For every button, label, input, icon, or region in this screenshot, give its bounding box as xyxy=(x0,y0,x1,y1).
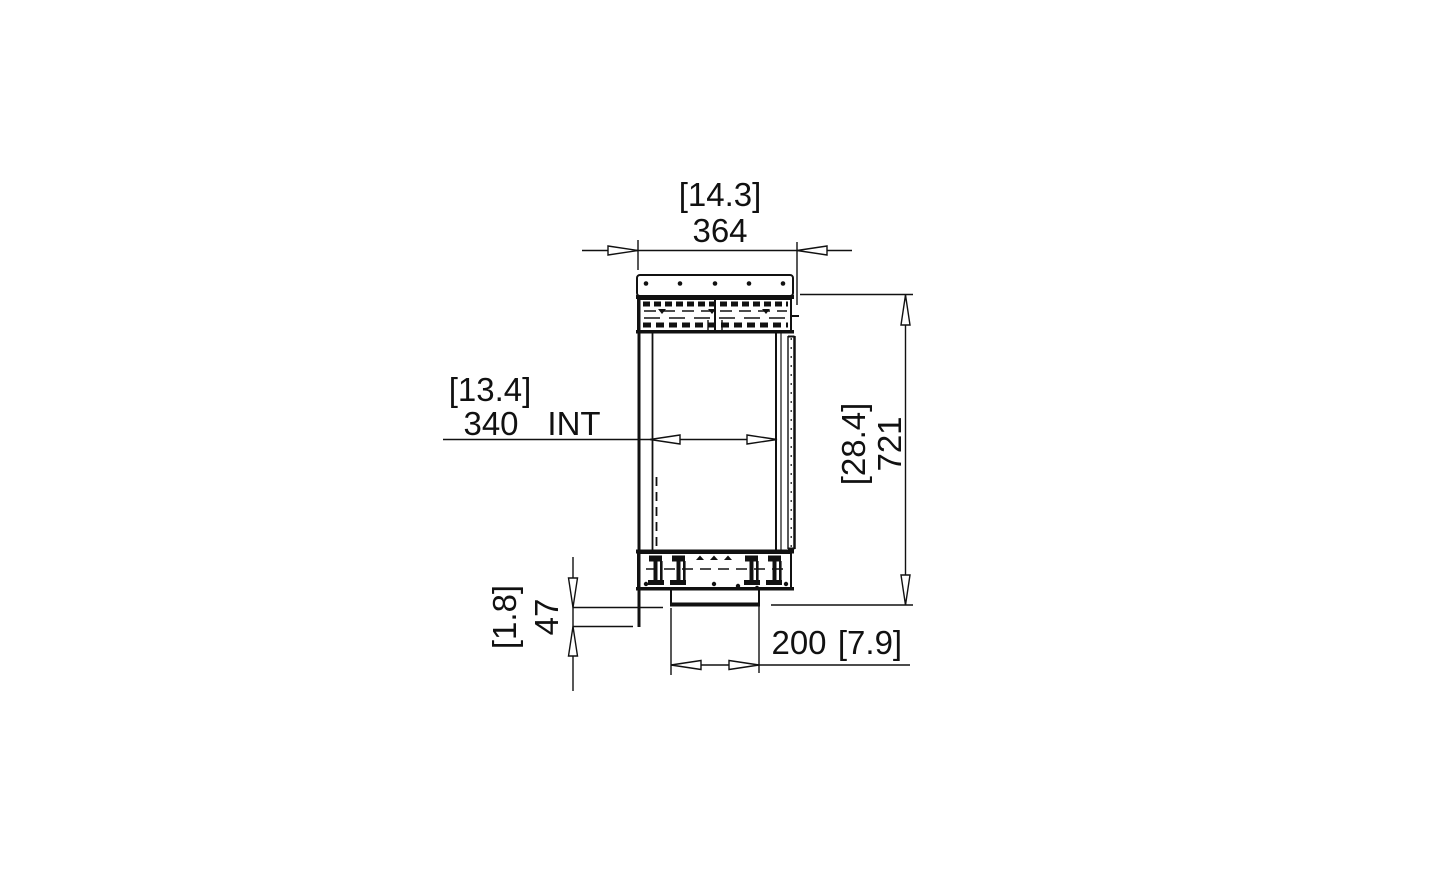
dim-internal-width: [13.4] 340 INT xyxy=(443,371,777,444)
fireplace-body xyxy=(636,275,799,627)
bracket-assembly-left xyxy=(648,556,686,586)
dim-internal-width-value-label: 340 xyxy=(463,405,518,442)
arrowhead-left-icon xyxy=(671,661,701,670)
dim-internal-width-suffix-label: INT xyxy=(547,405,600,442)
dim-overall-height-alt-label: [28.4] xyxy=(835,403,872,486)
weld-marks-lower xyxy=(696,556,732,561)
dim-burner-width-alt-label: [7.9] xyxy=(838,624,902,661)
arrowhead-left-icon xyxy=(650,435,680,444)
drawing-page: [14.3] 364 [13.4] 340 INT [28.4] 721 xyxy=(0,0,1445,893)
dim-bottom-offset-alt-label: [1.8] xyxy=(486,585,523,649)
dim-overall-width-value-label: 364 xyxy=(692,212,747,249)
dim-overall-width: [14.3] 364 xyxy=(582,176,852,305)
arrowhead-up-icon xyxy=(569,627,578,657)
dim-burner-width-value-label: 200 xyxy=(771,624,826,661)
dim-overall-width-alt-label: [14.3] xyxy=(679,176,762,213)
flange-screw-dots xyxy=(644,281,786,286)
top-mounting-flange xyxy=(637,275,793,296)
arrowhead-up-icon xyxy=(901,295,910,325)
arrowhead-left-icon xyxy=(797,246,827,255)
arrowhead-right-icon xyxy=(729,661,759,670)
dim-bottom-offset: [1.8] 47 xyxy=(486,557,663,691)
arrowhead-right-icon xyxy=(608,246,638,255)
bottom-band-base xyxy=(636,587,794,591)
right-outer-panel xyxy=(788,336,795,549)
insulation-band-base xyxy=(636,330,794,334)
technical-drawing: [14.3] 364 [13.4] 340 INT [28.4] 721 xyxy=(0,0,1445,893)
dim-bottom-offset-value-label: 47 xyxy=(528,599,565,636)
insulation-band xyxy=(638,299,799,331)
bottom-band xyxy=(638,553,791,589)
bracket-assembly-right xyxy=(744,556,782,586)
arrowhead-down-icon xyxy=(569,578,578,608)
dim-internal-width-alt-label: [13.4] xyxy=(449,371,532,408)
dim-overall-height: [28.4] 721 xyxy=(771,295,913,606)
arrowhead-down-icon xyxy=(901,575,910,605)
dim-overall-height-value-label: 721 xyxy=(871,416,908,471)
arrowhead-right-icon xyxy=(747,435,777,444)
